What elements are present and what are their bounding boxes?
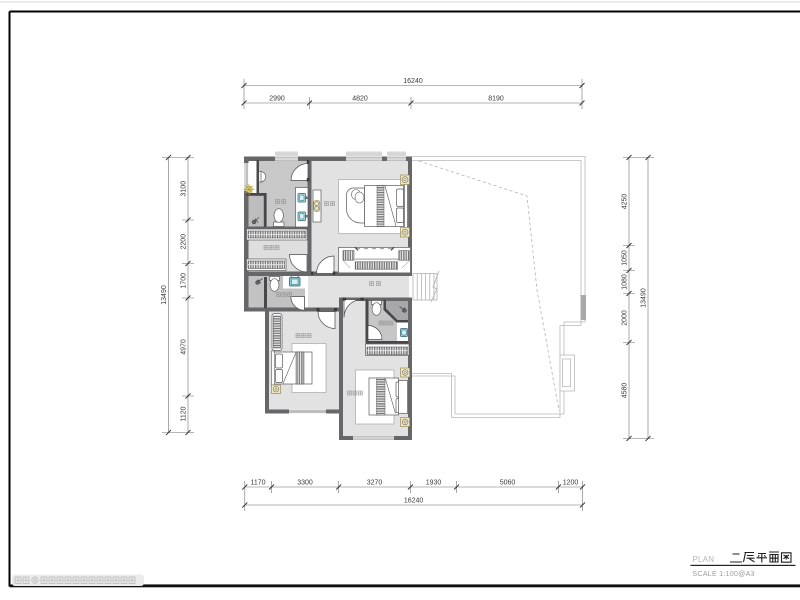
svg-text:SCALE 1:100@A3: SCALE 1:100@A3 bbox=[693, 571, 755, 578]
svg-text:4820: 4820 bbox=[352, 96, 368, 103]
svg-text:3100: 3100 bbox=[181, 181, 188, 197]
svg-text:2990: 2990 bbox=[269, 96, 285, 103]
svg-text:4970: 4970 bbox=[181, 339, 188, 355]
svg-text:1050: 1050 bbox=[622, 250, 629, 266]
svg-text:3300: 3300 bbox=[297, 480, 313, 487]
svg-text:13490: 13490 bbox=[161, 285, 168, 305]
svg-text:1080: 1080 bbox=[622, 274, 629, 290]
svg-text:16240: 16240 bbox=[404, 498, 424, 505]
svg-text:4250: 4250 bbox=[622, 194, 629, 210]
svg-text:1120: 1120 bbox=[181, 406, 188, 421]
svg-text:8190: 8190 bbox=[488, 96, 504, 103]
svg-text:PLAN: PLAN bbox=[693, 555, 715, 564]
svg-text:1200: 1200 bbox=[563, 480, 579, 487]
svg-text:5060: 5060 bbox=[500, 480, 516, 487]
svg-text:2200: 2200 bbox=[181, 234, 188, 250]
svg-text:3270: 3270 bbox=[367, 480, 383, 487]
svg-text:16240: 16240 bbox=[403, 78, 423, 85]
svg-text:1930: 1930 bbox=[426, 480, 442, 487]
svg-text:4580: 4580 bbox=[622, 383, 629, 399]
svg-text:2000: 2000 bbox=[622, 310, 629, 326]
svg-text:1170: 1170 bbox=[250, 480, 265, 487]
svg-text:1700: 1700 bbox=[181, 273, 188, 289]
svg-text:13490: 13490 bbox=[641, 288, 648, 308]
